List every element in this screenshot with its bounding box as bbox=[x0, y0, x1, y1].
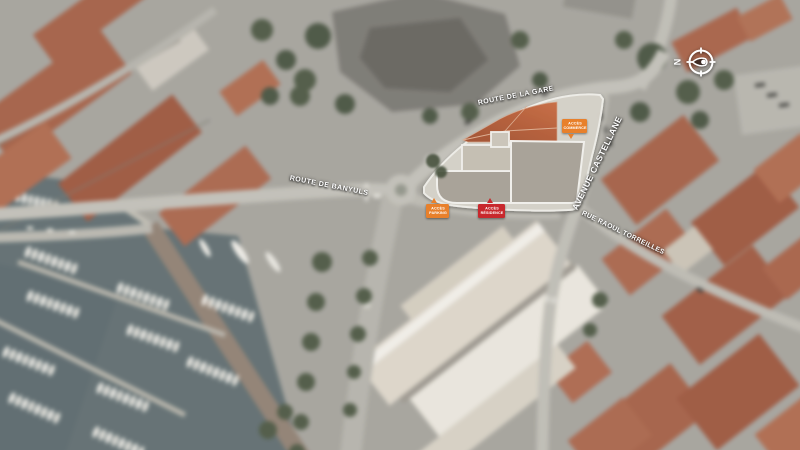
compass-north-label: N bbox=[673, 59, 683, 66]
marker-acces-residence: ACCÈS RÉSIDENCE bbox=[478, 204, 505, 218]
arrow-up-icon bbox=[431, 198, 437, 203]
compass-north-icon: N bbox=[664, 44, 724, 80]
marker-acces-parking-label: ACCÈS PARKING bbox=[426, 207, 449, 216]
aerial-site-map: ROUTE DE LA GARE ROUTE DE BANYULS AVENUE… bbox=[0, 0, 800, 450]
building-annex-small bbox=[491, 132, 509, 147]
arrow-up-red-icon bbox=[487, 198, 493, 203]
building-annex bbox=[462, 145, 511, 171]
building-mass-left bbox=[437, 171, 511, 203]
tiled-roof bbox=[463, 102, 557, 142]
marker-acces-commerce-label: ACCÈS COMMERCE bbox=[562, 122, 587, 131]
marker-acces-residence-label: ACCÈS RÉSIDENCE bbox=[478, 207, 505, 216]
arrow-down-icon bbox=[568, 134, 574, 139]
building-mass-right bbox=[511, 141, 584, 203]
marker-acces-parking: ACCÈS PARKING bbox=[426, 204, 449, 218]
marker-acces-commerce: ACCÈS COMMERCE bbox=[562, 119, 587, 133]
